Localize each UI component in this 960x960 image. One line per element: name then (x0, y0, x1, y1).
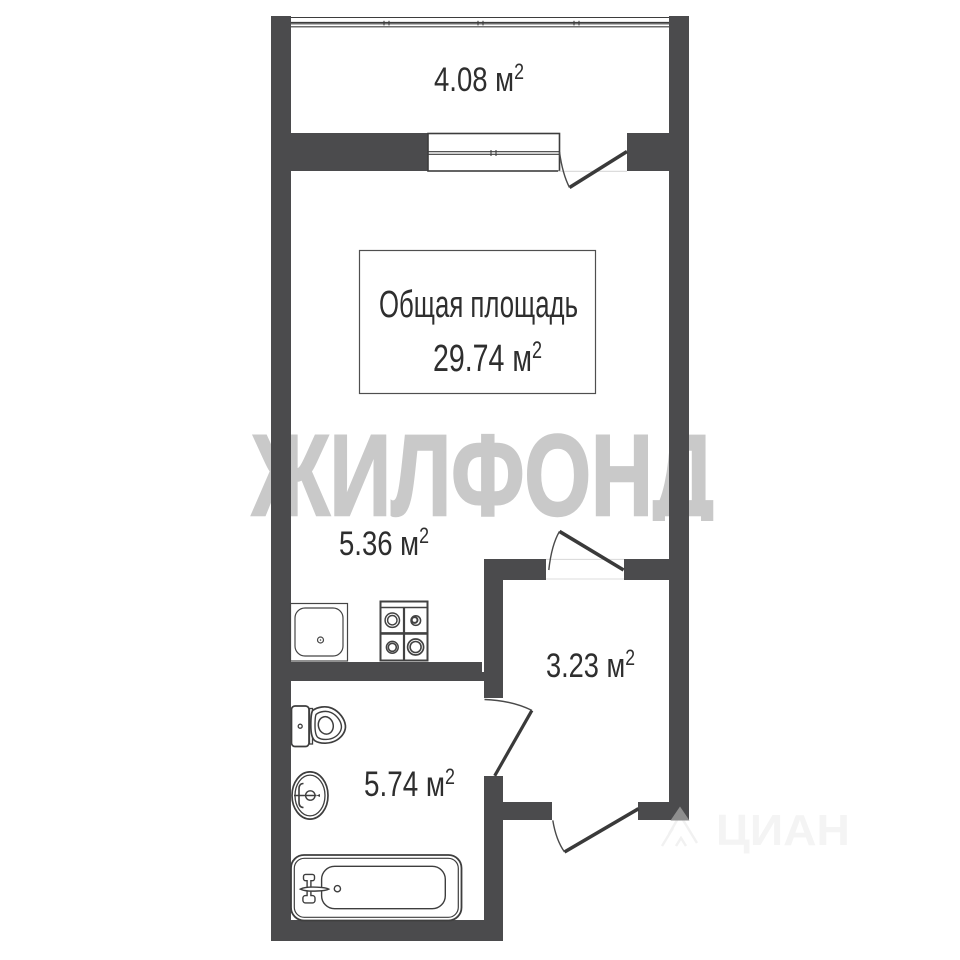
svg-text:ЖИЛФОНД: ЖИЛФОНД (251, 412, 714, 540)
svg-text:4.08 м2: 4.08 м2 (434, 59, 524, 99)
svg-text:29.74 м2: 29.74 м2 (433, 337, 542, 380)
svg-text:Общая площадь: Общая площадь (379, 284, 578, 326)
svg-text:ЦИАН: ЦИАН (716, 806, 850, 855)
svg-text:5.36 м2: 5.36 м2 (339, 523, 429, 563)
svg-text:5.74 м2: 5.74 м2 (364, 764, 455, 804)
svg-text:3.23 м2: 3.23 м2 (546, 645, 635, 685)
